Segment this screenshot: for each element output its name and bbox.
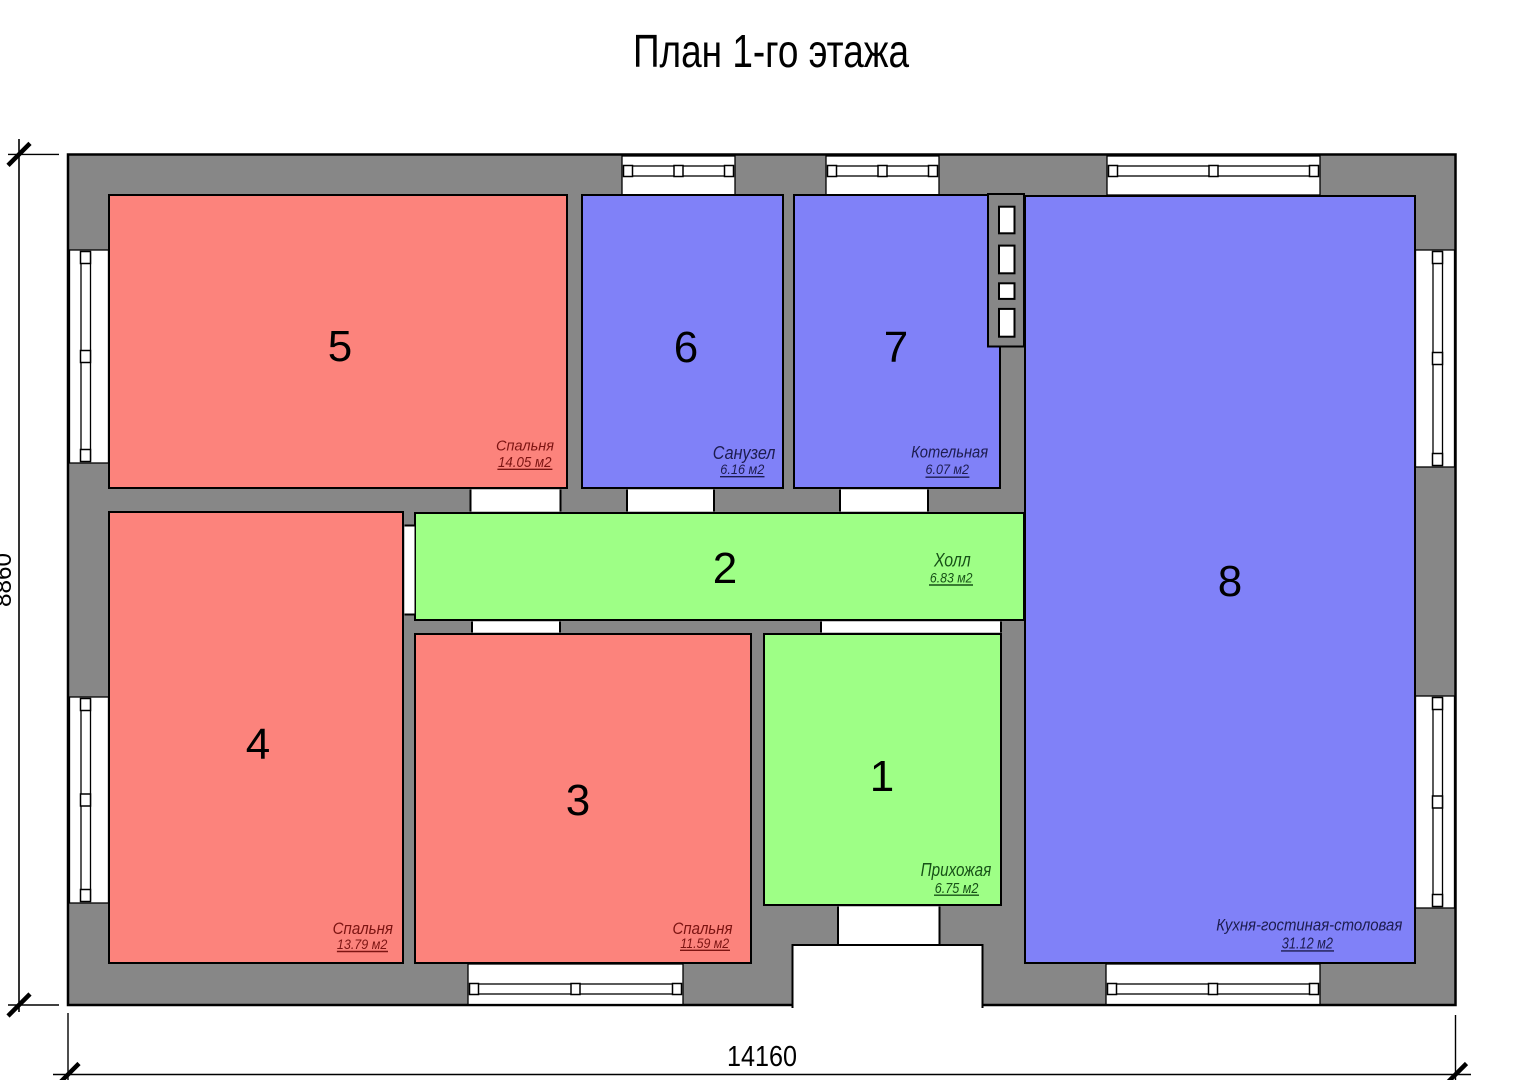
svg-text:7: 7 [884, 323, 908, 372]
svg-text:6.07 м2: 6.07 м2 [926, 462, 970, 477]
svg-text:8860: 8860 [0, 553, 17, 607]
svg-text:5: 5 [328, 322, 352, 371]
svg-text:6: 6 [674, 323, 698, 372]
svg-text:4: 4 [246, 720, 270, 769]
svg-text:8: 8 [1218, 557, 1242, 606]
svg-text:13.79 м2: 13.79 м2 [337, 936, 388, 952]
svg-text:6.16 м2: 6.16 м2 [720, 461, 764, 477]
svg-text:1: 1 [870, 752, 894, 801]
svg-text:Кухня-гостиная-столовая: Кухня-гостиная-столовая [1216, 916, 1402, 935]
svg-text:Спальня: Спальня [496, 437, 554, 454]
svg-text:Прихожая: Прихожая [921, 860, 992, 880]
svg-text:Холл: Холл [933, 551, 971, 572]
svg-text:31.12 м2: 31.12 м2 [1282, 936, 1333, 953]
svg-text:Котельная: Котельная [911, 443, 988, 462]
svg-text:11.59 м2: 11.59 м2 [680, 935, 729, 951]
svg-text:2: 2 [713, 544, 737, 593]
svg-text:6.75 м2: 6.75 м2 [935, 881, 979, 897]
svg-text:6.83 м2: 6.83 м2 [930, 571, 973, 586]
svg-text:3: 3 [566, 776, 590, 825]
svg-text:14160: 14160 [727, 1041, 797, 1073]
svg-text:План 1-го этажа: План 1-го этажа [633, 25, 909, 77]
